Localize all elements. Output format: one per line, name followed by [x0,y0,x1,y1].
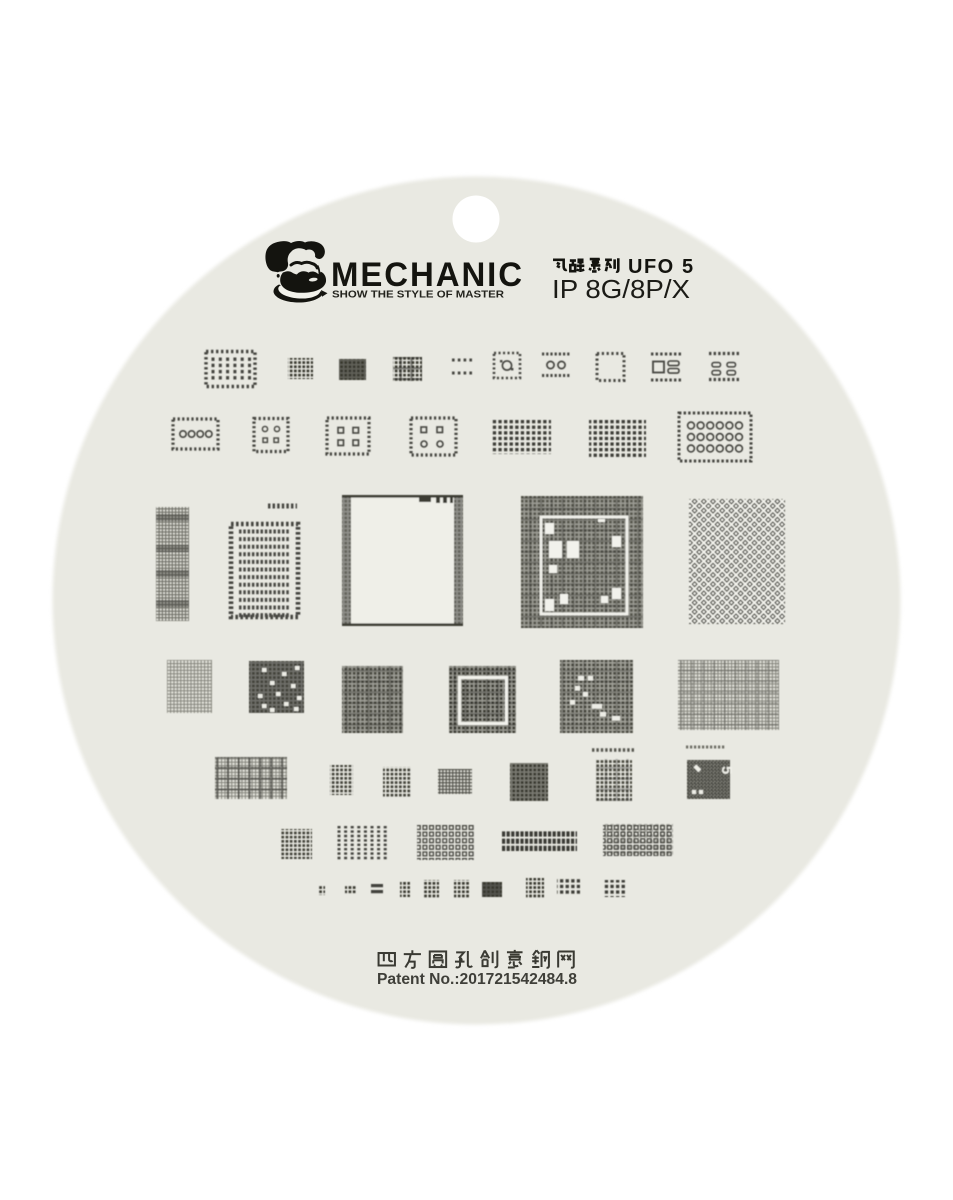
svg-text:MECHANIC: MECHANIC [331,256,524,294]
svg-text:IP 8G/8P/X: IP 8G/8P/X [552,274,690,304]
svg-text:SHOW THE STYLE OF MASTER: SHOW THE STYLE OF MASTER [332,290,505,301]
svg-text:Patent No.:201721542484.8: Patent No.:201721542484.8 [377,971,577,988]
svg-text:5: 5 [718,766,735,774]
